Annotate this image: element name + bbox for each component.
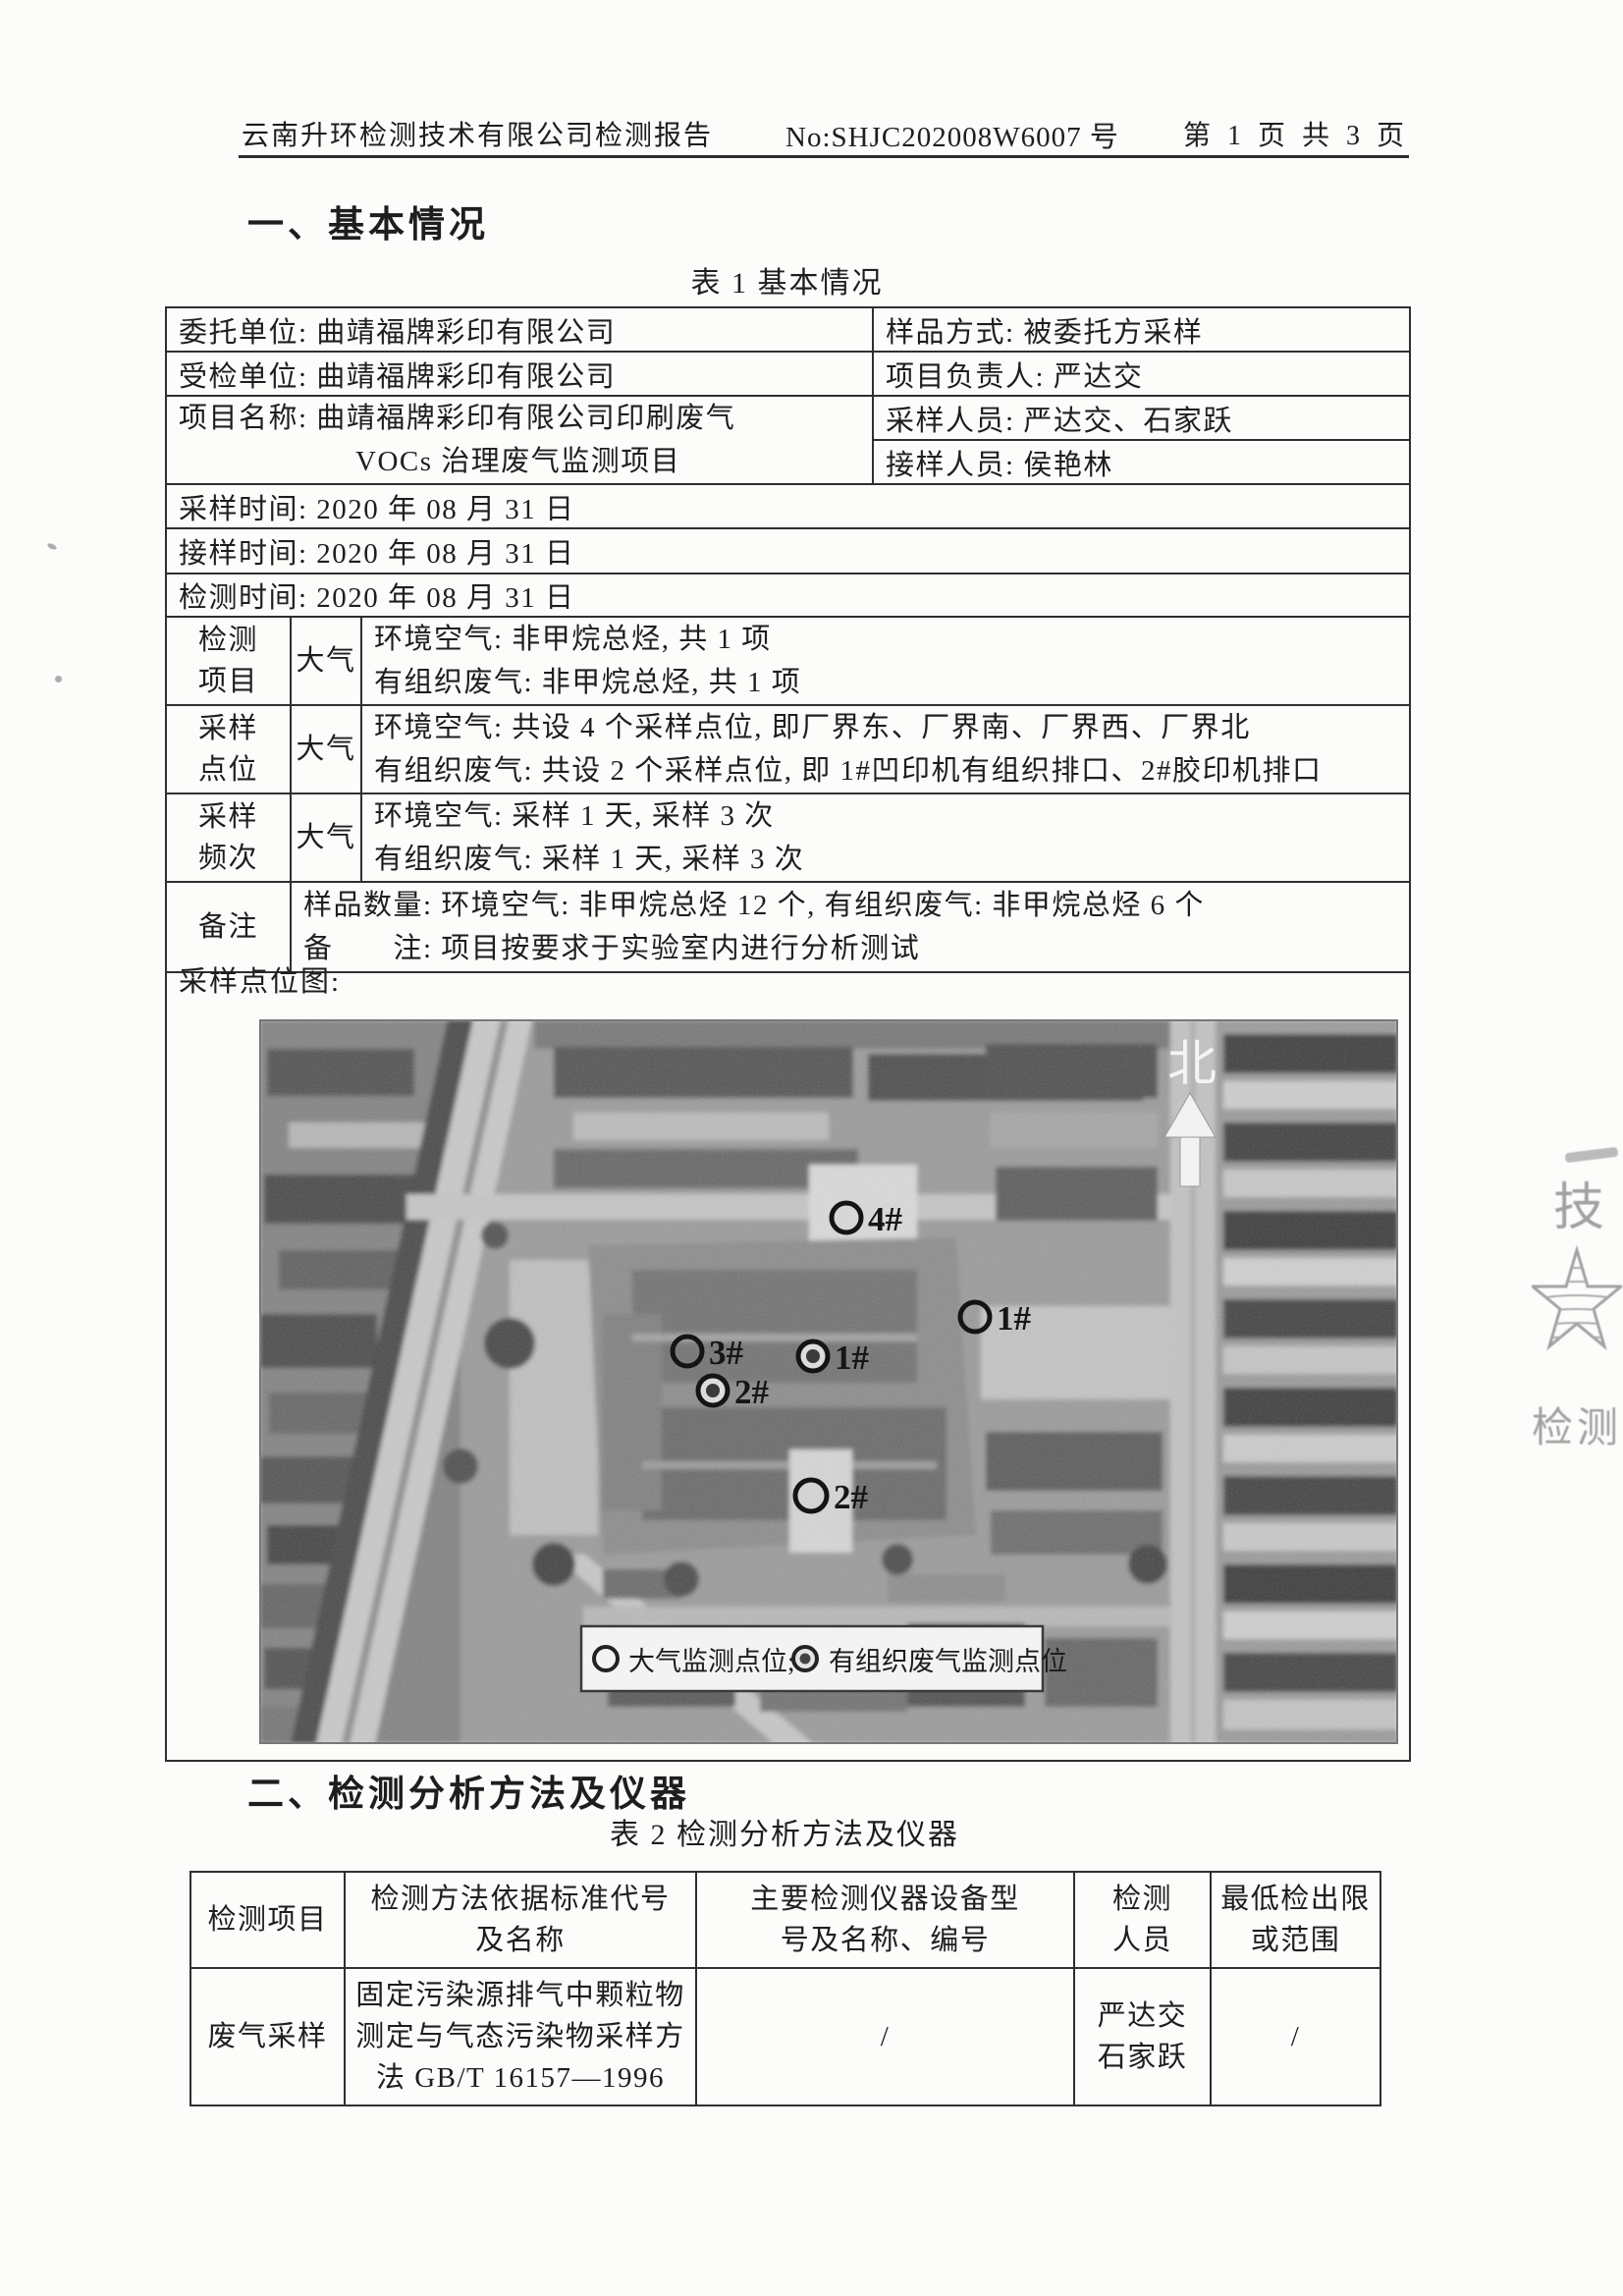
cell-project-name: 项目名称: 曲靖福牌彩印有限公司印刷废气 VOCs 治理废气监测项目	[166, 396, 873, 484]
cell-sample-method: 样品方式: 被委托方采样	[873, 307, 1410, 352]
t2-header-personnel: 检测 人员	[1074, 1872, 1211, 1968]
t2-cell-method-standard: 固定污染源排气中颗粒物 测定与气态污染物采样方 法 GB/T 16157—199…	[345, 1968, 696, 2105]
cell-test-items-content: 环境空气: 非甲烷总烃, 共 1 项 有组织废气: 非甲烷总烃, 共 1 项	[361, 617, 1410, 705]
cell-sampling-frequency-content: 环境空气: 采样 1 天, 采样 3 次 有组织废气: 采样 1 天, 采样 3…	[361, 793, 1410, 882]
sampling-points-line1: 环境空气: 共设 4 个采样点位, 即厂界东、厂界南、厂界西、厂界北	[374, 706, 1397, 749]
marker-organized-2: 2#	[698, 1373, 770, 1411]
project-name-line1: 项目名称: 曲靖福牌彩印有限公司印刷废气	[179, 397, 860, 440]
header-company-title: 云南升环检测技术有限公司检测报告	[242, 114, 713, 153]
t2-cell-detection-limit: /	[1211, 1968, 1380, 2105]
t2-cell-test-item: 废气采样	[190, 1968, 345, 2105]
legend-double-circle-core	[800, 1654, 811, 1665]
section1-heading: 一、基本情况	[247, 194, 489, 247]
sampling-points-line2: 有组织废气: 共设 2 个采样点位, 即 1#凹印机有组织排口、2#胶印机排口	[374, 749, 1397, 793]
cell-sampling-frequency-category: 大气	[291, 793, 361, 882]
sampling-frequency-line2: 有组织废气: 采样 1 天, 采样 3 次	[374, 838, 1397, 881]
remark-line2: 备 注: 项目按要求于实验室内进行分析测试	[303, 927, 1397, 970]
test-items-line2: 有组织废气: 非甲烷总烃, 共 1 项	[374, 661, 1397, 704]
scan-speck	[55, 676, 62, 683]
test-items-line1: 环境空气: 非甲烷总烃, 共 1 项	[374, 618, 1397, 661]
cell-sampling-staff: 采样人员: 严达交、石家跃	[873, 396, 1410, 440]
legend-organized-label: 有组织废气监测点位	[829, 1647, 1067, 1676]
cell-sampling-frequency-label: 采样 频次	[166, 793, 291, 882]
t2-header-instrument: 主要检测仪器设备型 号及名称、编号	[696, 1872, 1074, 1968]
section2-heading: 二、检测分析方法及仪器	[247, 1764, 690, 1817]
t2-header-method-standard: 检测方法依据标准代号 及名称	[345, 1872, 696, 1968]
header-page-indicator: 第 1 页 共 3 页	[1183, 114, 1409, 153]
stamp-star-icon	[1532, 1242, 1622, 1380]
table2-methods-instruments: 检测项目 检测方法依据标准代号 及名称 主要检测仪器设备型 号及名称、编号 检测…	[189, 1871, 1381, 2106]
stamp-char-top: 技	[1553, 1166, 1606, 1239]
cell-sampling-points-category: 大气	[291, 705, 361, 793]
cell-testing-time: 检测时间: 2020 年 08 月 31 日	[166, 574, 1410, 617]
header-report-number: No:SHJC202008W6007 号	[785, 114, 1119, 155]
header-rule	[239, 155, 1409, 158]
sampling-map-label: 采样点位图:	[179, 958, 341, 1000]
stamp-char-bottom: 检测	[1532, 1394, 1622, 1454]
north-label: 北	[1167, 1036, 1217, 1091]
cell-client-unit: 委托单位: 曲靖福牌彩印有限公司	[166, 307, 873, 352]
cell-project-leader: 项目负责人: 严达交	[873, 352, 1410, 396]
table1-caption: 表 1 基本情况	[165, 258, 1409, 301]
cell-sampling-points-content: 环境空气: 共设 4 个采样点位, 即厂界东、厂界南、厂界西、厂界北 有组织废气…	[361, 705, 1410, 793]
partial-stamp: 技 检测	[1528, 1144, 1623, 1473]
sampling-frequency-line1: 环境空气: 采样 1 天, 采样 3 次	[374, 794, 1397, 838]
scan-speck	[46, 542, 57, 551]
north-arrow-shaft	[1180, 1137, 1200, 1186]
marker-label: 3#	[709, 1334, 744, 1372]
cell-test-items-label: 检测 项目	[166, 617, 291, 705]
cell-receiving-time: 接样时间: 2020 年 08 月 31 日	[166, 528, 1410, 574]
cell-remark-content: 样品数量: 环境空气: 非甲烷总烃 12 个, 有组织废气: 非甲烷总烃 6 个…	[291, 882, 1410, 972]
cell-test-items-category: 大气	[291, 617, 361, 705]
marker-label: 1#	[997, 1299, 1032, 1338]
table2-caption: 表 2 检测分析方法及仪器	[189, 1810, 1380, 1853]
cell-receiving-staff: 接样人员: 侯艳林	[873, 440, 1410, 484]
map-legend: 大气监测点位; 有组织废气监测点位	[581, 1626, 1067, 1691]
marker-organized-1: 1#	[798, 1339, 870, 1377]
marker-label: 2#	[834, 1478, 869, 1516]
satellite-map-image: 北 4# 1# 3#	[259, 1019, 1398, 1744]
remark-line1: 样品数量: 环境空气: 非甲烷总烃 12 个, 有组织废气: 非甲烷总烃 6 个	[303, 884, 1397, 927]
t2-header-test-item: 检测项目	[190, 1872, 345, 1968]
cell-sampling-time: 采样时间: 2020 年 08 月 31 日	[166, 484, 1410, 528]
marker-label: 1#	[835, 1339, 870, 1377]
t2-header-detection-limit: 最低检出限 或范围	[1211, 1872, 1380, 1968]
marker-label: 2#	[734, 1373, 770, 1411]
t2-cell-instrument: /	[696, 1968, 1074, 2105]
marker-label: 4#	[868, 1200, 903, 1238]
sampling-location-map: 北 4# 1# 3#	[259, 1019, 1398, 1744]
project-name-line2: VOCs 治理废气监测项目	[179, 440, 860, 483]
legend-atmospheric-label: 大气监测点位;	[628, 1647, 795, 1676]
report-page: 云南升环检测技术有限公司检测报告 No:SHJC202008W6007 号 第 …	[0, 0, 1623, 2296]
cell-inspected-unit: 受检单位: 曲靖福牌彩印有限公司	[166, 352, 873, 396]
t2-cell-personnel: 严达交 石家跃	[1074, 1968, 1211, 2105]
table-row: 废气采样 固定污染源排气中颗粒物 测定与气态污染物采样方 法 GB/T 1615…	[190, 1968, 1380, 2105]
stamp-smudge	[1565, 1147, 1619, 1164]
cell-sampling-points-label: 采样 点位	[166, 705, 291, 793]
